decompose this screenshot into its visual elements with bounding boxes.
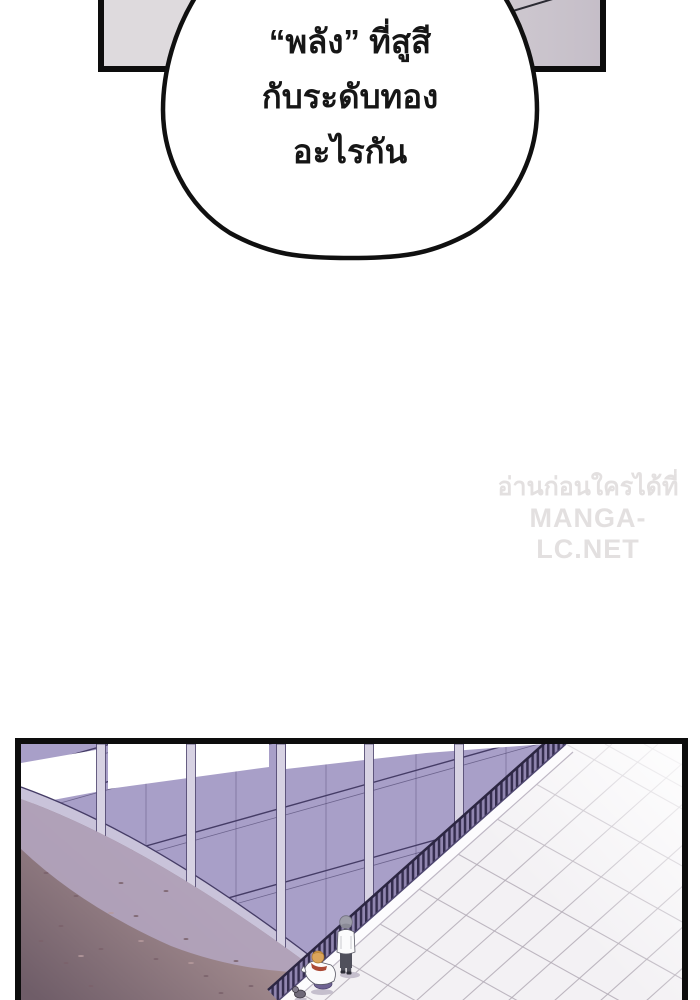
watermark-site-name: MANGA-LC.NET (487, 503, 689, 565)
watermark-thai-line: อ่านก่อนใครได้ที่ (487, 472, 689, 503)
bubble-line-3: อะไรกัน (163, 124, 537, 179)
manga-page: “พลัง” ที่สูสี กับระดับทอง อะไรกัน อ่านก… (0, 0, 700, 1000)
plaza-scene (21, 744, 682, 1000)
site-watermark: อ่านก่อนใครได้ที่ MANGA-LC.NET (487, 472, 689, 565)
speech-bubble-text: “พลัง” ที่สูสี กับระดับทอง อะไรกัน (163, 14, 537, 179)
bubble-line-1: “พลัง” ที่สูสี (163, 14, 537, 69)
bottom-comic-panel (15, 738, 688, 1000)
character-shadow (311, 989, 333, 995)
bubble-line-2: กับระดับทอง (163, 69, 537, 124)
